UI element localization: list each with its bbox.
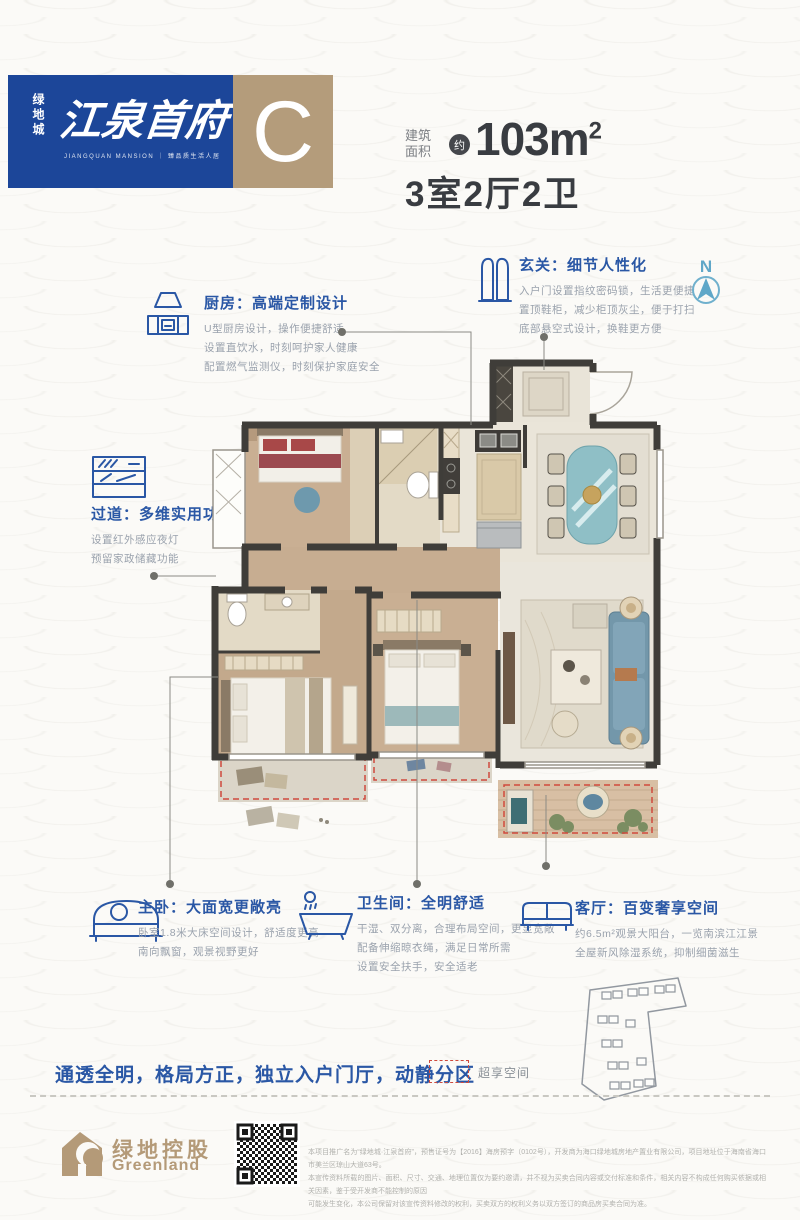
disclaimer: 本项目推广名为“绿地城·江泉首府”，预售证号为【2016】海房预字（0102号）…: [308, 1146, 766, 1211]
greenland-logo-icon: [58, 1130, 110, 1178]
svg-text:N: N: [700, 257, 712, 276]
leader-dots: [150, 328, 550, 888]
logo-text-en: Greenland: [112, 1157, 200, 1175]
bonus-space-legend-box: [429, 1060, 469, 1083]
tagline: 通透全明，格局方正，独立入户门厅，动静分区: [55, 1060, 475, 1087]
site-buildings: [598, 985, 675, 1089]
qr-code: [234, 1121, 300, 1187]
floorplan-poster: 绿地城 江泉首府 JIANGQUAN MANSION ｜ 臻品质生活人居 C 建…: [0, 0, 800, 1220]
footer-divider: [30, 1095, 770, 1097]
compass-icon: N: [693, 257, 719, 303]
bonus-space-legend-label: 超享空间: [478, 1064, 530, 1081]
leader-lines: [154, 332, 546, 884]
